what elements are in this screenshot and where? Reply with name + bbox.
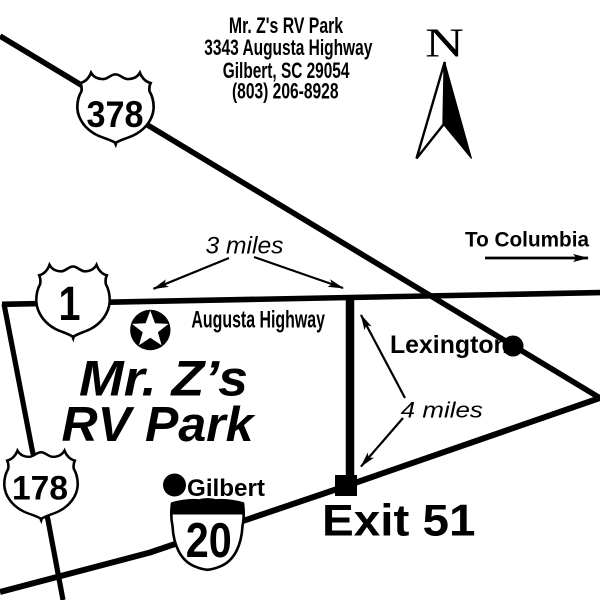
svg-text:378: 378 — [87, 94, 144, 135]
svg-text:4 miles: 4 miles — [401, 397, 483, 422]
svg-text:Gilbert: Gilbert — [187, 475, 265, 502]
svg-text:To Columbia: To Columbia — [465, 228, 590, 252]
svg-text:RV Park: RV Park — [62, 397, 257, 452]
svg-text:3343 Augusta Highway: 3343 Augusta Highway — [204, 35, 373, 60]
svg-text:Lexington: Lexington — [390, 332, 509, 359]
svg-text:1: 1 — [59, 277, 81, 331]
svg-text:Augusta Highway: Augusta Highway — [191, 308, 325, 334]
svg-text:178: 178 — [12, 470, 68, 508]
svg-text:N: N — [425, 20, 464, 65]
svg-text:(803) 206-8928: (803) 206-8928 — [232, 78, 339, 103]
svg-text:20: 20 — [186, 513, 232, 568]
svg-text:3 miles: 3 miles — [206, 233, 284, 259]
svg-text:Exit 51: Exit 51 — [322, 497, 476, 546]
